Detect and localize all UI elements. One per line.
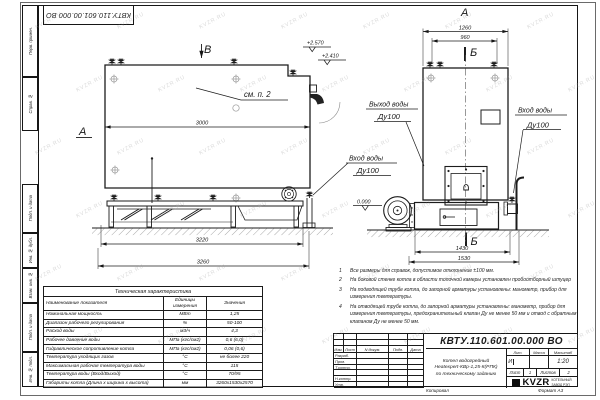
title-block: Изм. Лист N докум. Подп. Дата Разраб. Пр… [333,333,578,387]
section-b-bottom-label: Б [471,236,478,248]
drawing-sheet: КВТУ.110.601.00.000 ВО Перв. примен. Спр… [0,0,600,400]
tech-cell: Диапазон рабочего регулирования [44,319,163,328]
scale-value: 1:20 [549,356,577,368]
tech-cell: 115 [206,362,262,371]
tech-cell: % [163,319,206,328]
note-item: 1Все размеры для справок, допустимое отк… [338,268,578,276]
note-item: 3На подводящей трубе котла, до запорной … [338,287,578,303]
format-label: Формат А3 [538,388,563,393]
front-inlet-dn: Ду100 [526,121,550,130]
front-outlet-title: Выход воды [369,101,409,109]
side-inlet-dn: Ду100 [356,166,380,175]
copied-label: Копировал [426,388,449,393]
tech-cell: Максимальная рабочая температура воды [44,362,163,371]
see-note-label: см. п. 2 [244,90,271,99]
dim-1260: 1260 [459,26,472,32]
elevation-2410: +2.410 [322,54,339,60]
tech-cell: Температура уходящих газов [44,353,163,362]
tech-cell: Рабочее давление воды [44,336,163,345]
section-b-top-label: Б [470,47,477,59]
drawing-title: Котел водогрейный Heatexpert-КВр-1,25-К(… [426,349,507,388]
tech-cell: °С [163,370,206,379]
tech-col-units: Единицы измерения [163,297,206,310]
tech-cell: МПа (кгс/см2) [163,336,206,345]
tech-table: Техническая характеристика Наименование … [43,286,263,388]
front-view [353,29,567,266]
tech-cell: не более 220 [206,353,262,362]
tech-cell: Расход воды [44,327,163,336]
lit-value: И [507,359,514,365]
notes-list: 1Все размеры для справок, допустимое отк… [338,268,578,327]
company-cell: KVZR КОТЕЛЬНЫЙ ЗАВОД РЭП [507,377,577,388]
tech-cell: °С [163,353,206,362]
tech-cell: МВт [163,310,206,319]
section-a-arrow-label: А [78,126,86,138]
tech-cell: 70/95 [206,370,262,379]
tech-cell: Габариты котла (Длина х ширина х высота) [44,379,163,388]
tech-col-name: Наименование показателя [44,297,163,310]
kvzr-logo-text: KVZR [522,377,549,388]
dim-3000: 3000 [196,121,209,127]
tech-table-title: Техническая характеристика [44,287,262,297]
dim-3220: 3220 [196,238,209,244]
company-name: КОТЕЛЬНЫЙ ЗАВОД РЭП [552,378,572,386]
view-b-label: В [204,44,211,56]
elevation-2570: +2.570 [307,41,324,47]
tech-cell: мм [163,379,206,388]
dim-960: 960 [460,35,470,41]
tech-cell: Температура воды (Вход/Выход) [44,370,163,379]
note-item: 2На боковой стенке котла в области топоч… [338,277,578,285]
front-outlet-dn: Ду100 [377,112,401,121]
tech-cell: 50-100 [206,319,262,328]
note-item: 4На отводящей трубе котла, до запорной а… [338,304,578,327]
mass-value [530,356,549,368]
dim-3260: 3260 [197,260,210,266]
title-block-meta: Лит. Масса Масштаб И 1:20 Лист 1 [507,349,577,388]
tech-col-value: Значения [206,297,262,310]
view-a-label: А [460,7,468,19]
front-inlet-title: Вход воды [518,107,553,115]
tech-cell: 3260х1530х2570 [206,379,262,388]
dim-1530: 1530 [458,256,471,262]
tech-cell: 4,3 [206,327,262,336]
tech-cell: Гидравлическое сопротивление котла [44,344,163,353]
kvzr-logo-mark [512,379,520,387]
doc-number: КВТУ.110.601.00.000 ВО [426,334,577,349]
elevation-zero: 0.000 [357,200,371,206]
tech-cell: °С [163,362,206,371]
tech-cell: 0,6 (6,0) [206,336,262,345]
tech-cell: 1,25 [206,310,262,319]
tech-cell: МПа (кгс/см2) [163,344,206,353]
tech-cell: 0,06 (0,6) [206,344,262,353]
tech-cell: Номинальная мощность [44,310,163,319]
side-inlet-title: Вход воды [349,155,384,163]
title-block-signatures: Изм. Лист N докум. Подп. Дата Разраб. Пр… [334,334,426,386]
tech-cell: м3/ч [163,327,206,336]
dim-1430: 1430 [456,246,469,252]
